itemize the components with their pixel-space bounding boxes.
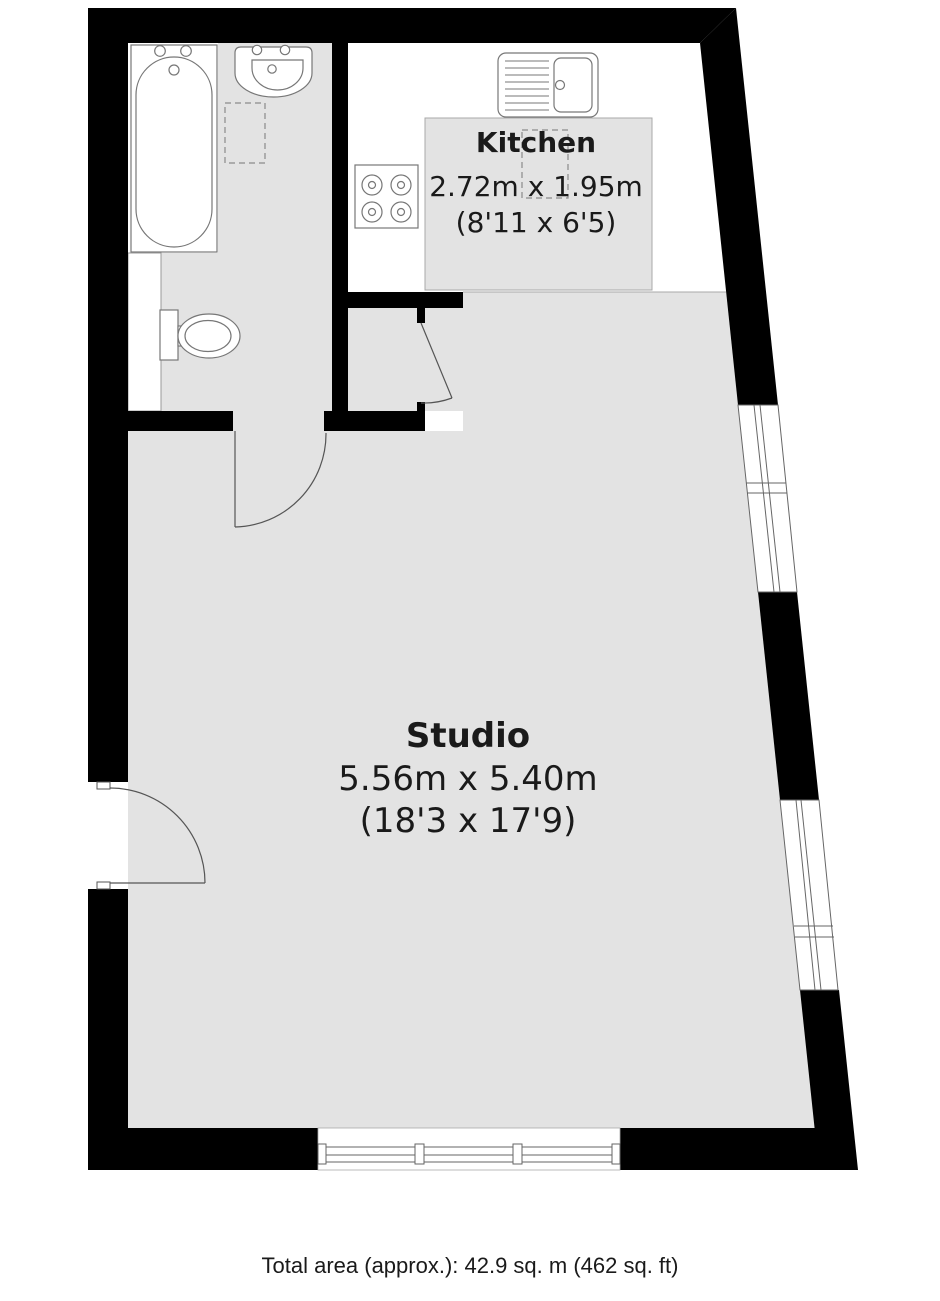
total-area-caption: Total area (approx.): 42.9 sq. m (462 sq… xyxy=(262,1253,679,1278)
wall-left-lower xyxy=(88,889,128,1170)
kitchen-dims-metric: 2.72m x 1.95m xyxy=(429,170,643,203)
wall-kitchen-door-post xyxy=(417,308,425,323)
washbasin-icon xyxy=(235,45,312,97)
bathtub-icon xyxy=(128,43,218,253)
studio-dims-metric: 5.56m x 5.40m xyxy=(338,759,597,799)
kitchen-lobby-floor xyxy=(348,308,463,411)
studio-floor-upper xyxy=(463,292,741,431)
door-jamb xyxy=(97,882,110,889)
floorplan-svg: Kitchen 2.72m x 1.95m (8'11 x 6'5) Studi… xyxy=(0,0,940,1301)
window-bottom xyxy=(318,1128,620,1170)
wall-top xyxy=(88,8,736,43)
kitchen-dims-imperial: (8'11 x 6'5) xyxy=(456,206,617,239)
bathtub-drain-icon xyxy=(169,65,179,75)
washbasin-tap-icon xyxy=(252,45,261,54)
bathtub-tap-icon xyxy=(155,46,166,57)
wall-bathroom-south-left xyxy=(88,411,233,431)
studio-label: Studio xyxy=(406,716,530,756)
bathroom-cabinet xyxy=(128,253,161,411)
toilet-cistern xyxy=(160,310,178,360)
wall-bathroom-kitchen-divider xyxy=(332,43,348,431)
sink-drain-icon xyxy=(556,81,565,90)
bathtub-tap-icon xyxy=(181,46,192,57)
hob-burner-center xyxy=(369,182,376,189)
wall-kitchen-south xyxy=(348,292,463,308)
bathtub-basin xyxy=(136,57,212,247)
wall-bottom-left xyxy=(88,1128,318,1170)
toilet-bowl-inner xyxy=(185,321,231,352)
bathroom-doorway-floor xyxy=(233,411,324,431)
window-mullion xyxy=(513,1144,522,1164)
door-jamb xyxy=(97,782,110,789)
studio-dims-imperial: (18'3 x 17'9) xyxy=(360,801,577,841)
window-mullion xyxy=(318,1144,326,1164)
hob-burner-center xyxy=(398,182,405,189)
washbasin-tap-icon xyxy=(280,45,289,54)
hob-burner-center xyxy=(398,209,405,216)
hob-icon xyxy=(355,165,418,228)
window-mullion xyxy=(415,1144,424,1164)
kitchen-label: Kitchen xyxy=(476,126,596,159)
window-mullion xyxy=(612,1144,620,1164)
hob-burner-center xyxy=(369,209,376,216)
washbasin-drain-icon xyxy=(268,65,276,73)
kitchen-sink-icon xyxy=(498,53,598,117)
